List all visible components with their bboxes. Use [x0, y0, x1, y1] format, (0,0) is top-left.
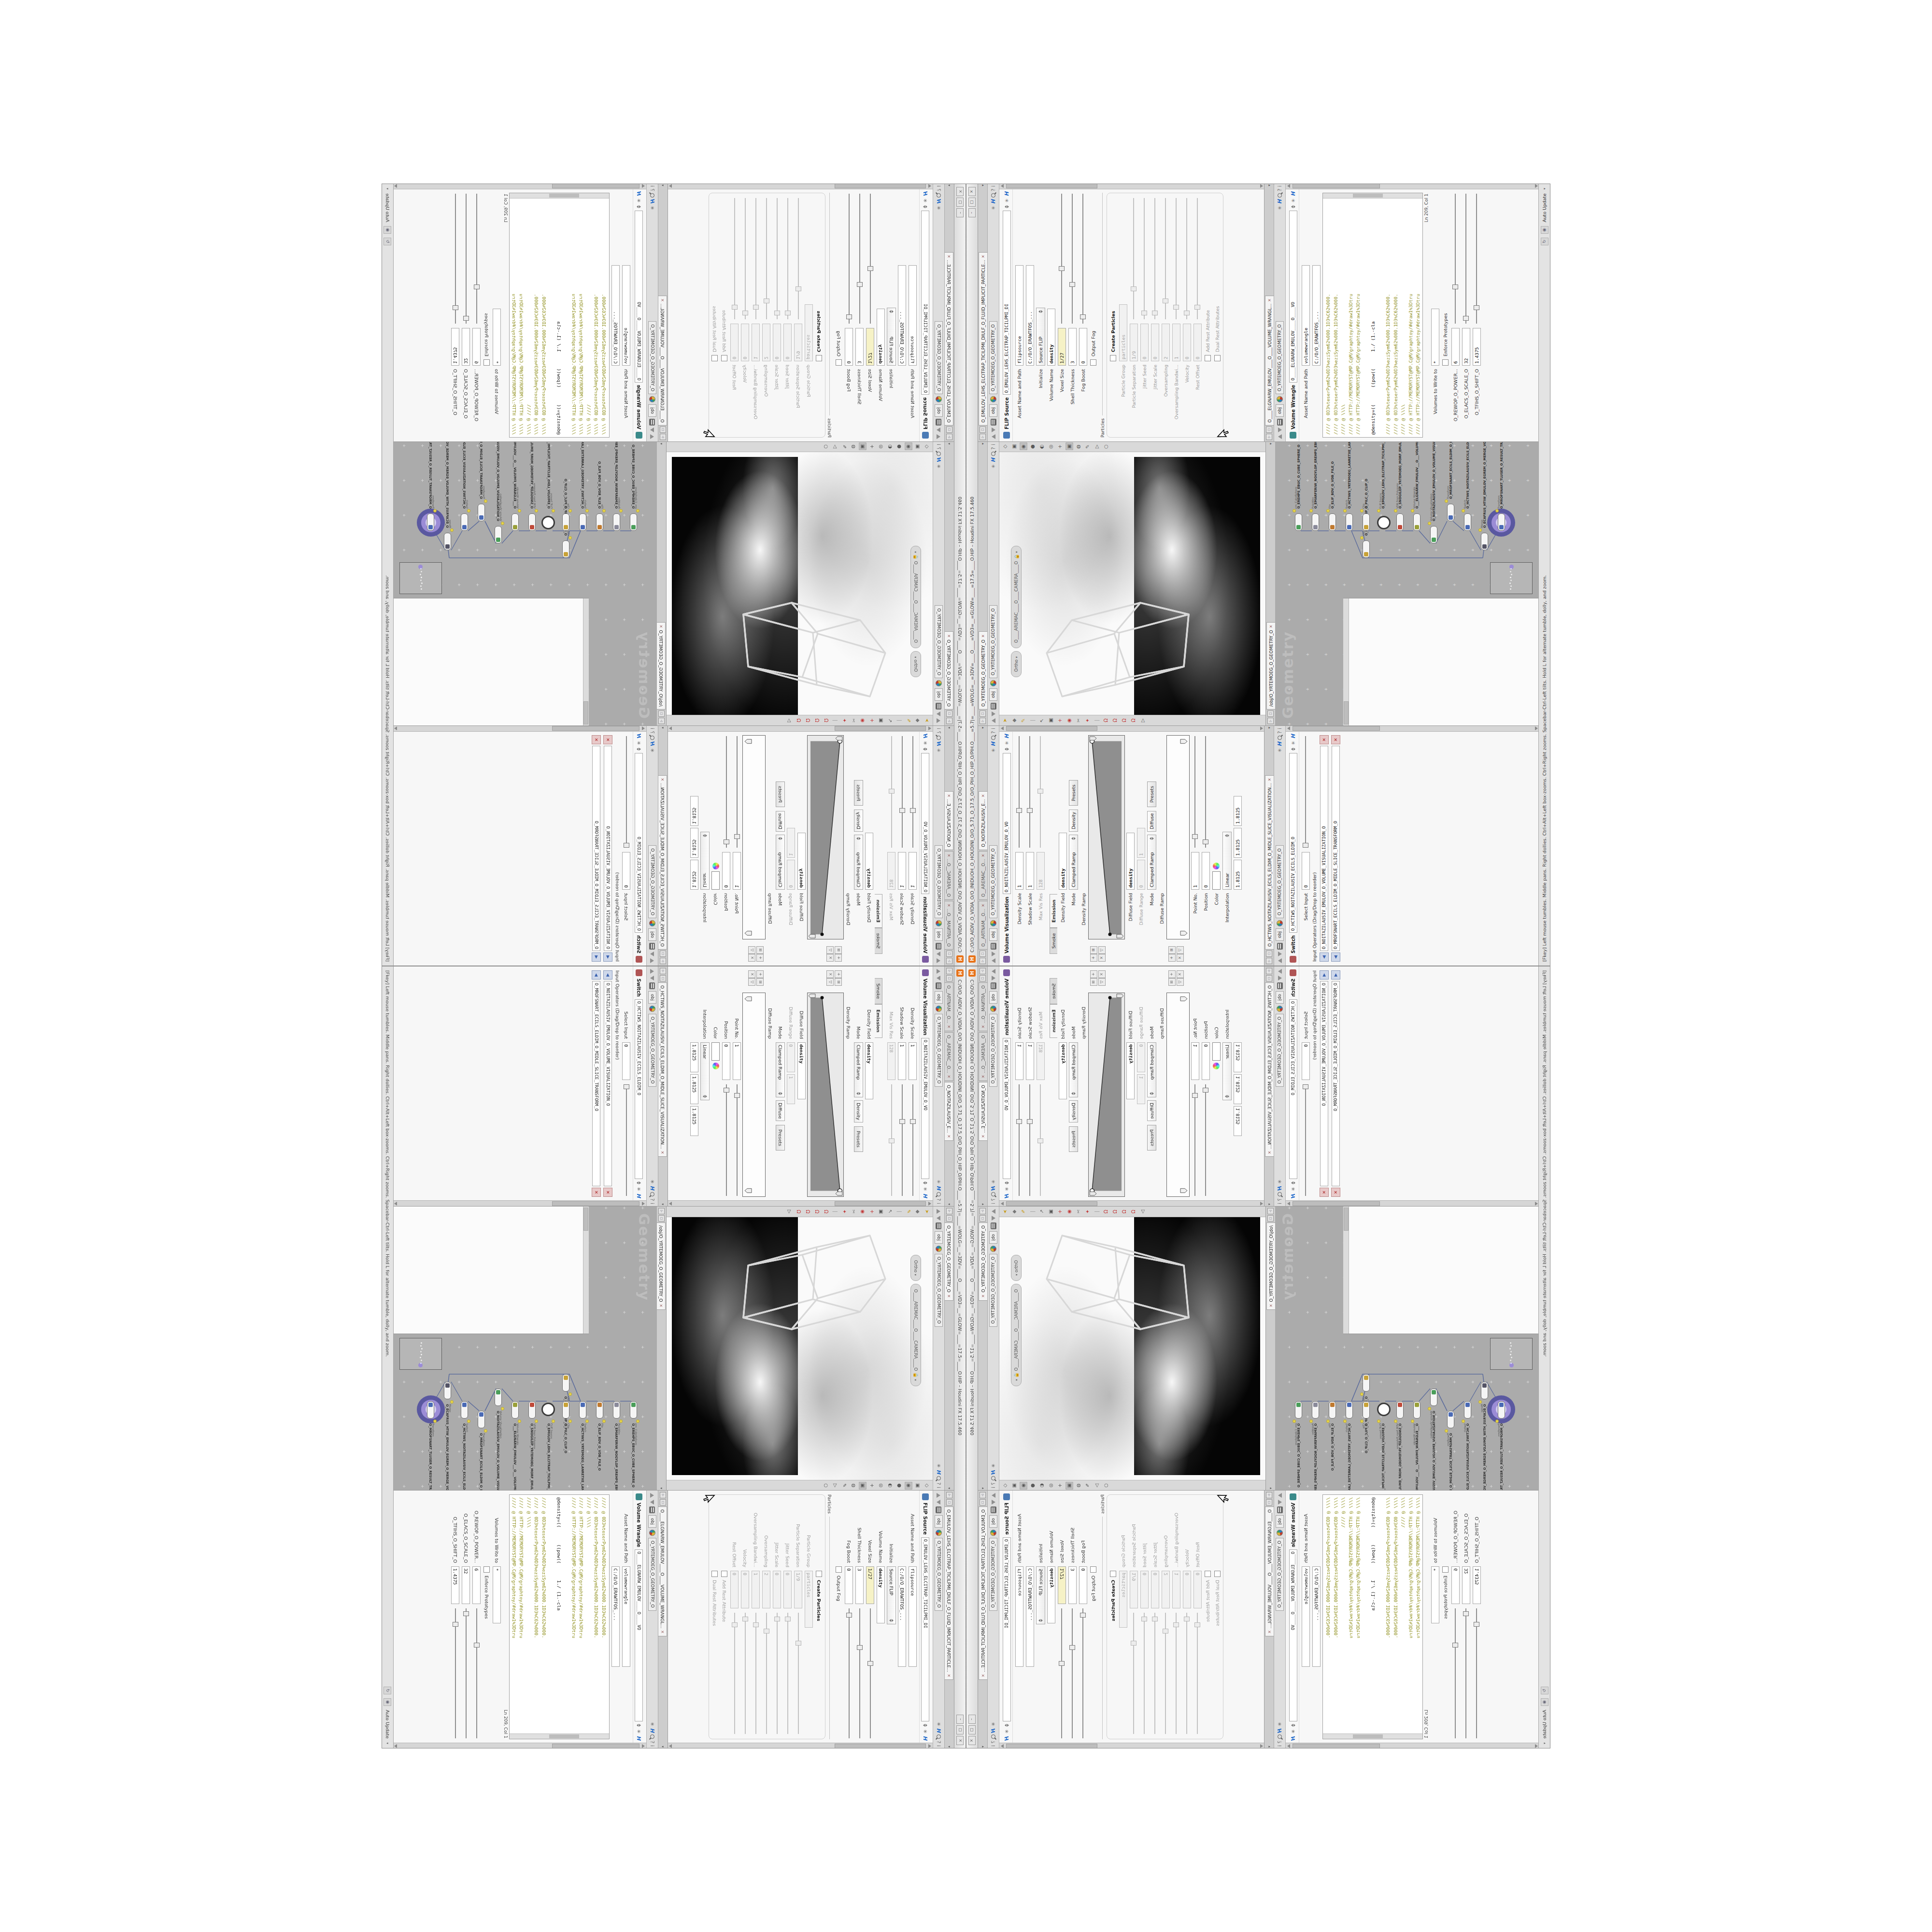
- search-icon[interactable]: [650, 736, 654, 740]
- viewport-tool-icon[interactable]: ◐: [1038, 443, 1046, 451]
- viewport-tool-icon[interactable]: ✎: [905, 717, 912, 724]
- pane-tab[interactable]: O_EMULOV_LEHS_ELCITRAP_TICILPMI_DIULF_O_…: [945, 1506, 953, 1680]
- node-flag[interactable]: [1495, 509, 1499, 512]
- delete-icon[interactable]: ×: [1331, 1188, 1340, 1197]
- node-flag[interactable]: [636, 509, 639, 512]
- node-flag[interactable]: [619, 1420, 623, 1423]
- ramp-widget-density[interactable]: [1088, 993, 1125, 1197]
- pane-tab[interactable]: O_YRTEMOEG_O_GEOMETRY_O×: [979, 631, 987, 710]
- viewport-tool-icon[interactable]: +: [1056, 443, 1064, 451]
- help-icon[interactable]: ?: [991, 189, 996, 191]
- node-flag[interactable]: [484, 499, 487, 503]
- param-field[interactable]: 3: [856, 328, 864, 366]
- viewport-tool-icon[interactable]: ◐: [1038, 1482, 1046, 1490]
- param-slider[interactable]: [1463, 1608, 1469, 1739]
- param-slider[interactable]: [899, 1084, 906, 1197]
- node-flag[interactable]: [1462, 509, 1465, 512]
- snapshot-icon[interactable]: [991, 982, 996, 989]
- tab-close-icon[interactable]: ×: [1267, 298, 1272, 302]
- param-field[interactable]: 3: [1068, 328, 1077, 366]
- pane-float-icon[interactable]: □: [946, 975, 952, 981]
- pane-tab[interactable]: /obj/O_YRTEMOEG_O_GEOMETRY_O×: [657, 622, 666, 710]
- snapshot-icon[interactable]: [650, 419, 655, 426]
- param-field[interactable]: density: [1047, 309, 1055, 366]
- pane-tab[interactable]: O_EMULOV_LEHS_ELCITRAP_TICILPMI_DIULF_O_…: [945, 252, 953, 426]
- tab-menu-caret-icon[interactable]: ▾: [1269, 443, 1273, 445]
- param-field[interactable]: 2: [763, 1571, 771, 1608]
- slider-handle[interactable]: [1184, 1617, 1190, 1621]
- search-icon[interactable]: [991, 736, 995, 740]
- gear-icon[interactable]: ✳: [650, 206, 655, 210]
- gear-icon[interactable]: ✳: [991, 206, 996, 210]
- presets-button[interactable]: Presets: [1147, 781, 1156, 807]
- node-flag[interactable]: [1394, 1420, 1397, 1423]
- param-field[interactable]: 0: [787, 860, 796, 890]
- pane-float-icon[interactable]: □: [946, 1215, 952, 1222]
- cook-mode-icon[interactable]: ◉: [1541, 226, 1548, 234]
- tab-menu-caret-icon[interactable]: ▾: [661, 1746, 665, 1747]
- gear-icon[interactable]: ✳: [650, 1179, 655, 1183]
- param-slider[interactable]: [1173, 197, 1179, 319]
- nav-back-icon[interactable]: [992, 969, 995, 974]
- info-icon[interactable]: i: [936, 444, 941, 445]
- search-icon[interactable]: [650, 1192, 654, 1196]
- minimize-button[interactable]: –: [956, 1715, 964, 1724]
- slider-handle[interactable]: [732, 305, 738, 310]
- tab-close-icon[interactable]: ×: [947, 255, 951, 258]
- snapshot-icon[interactable]: [991, 1222, 996, 1229]
- viewport-tool-icon[interactable]: ▷: [785, 717, 793, 724]
- slider-handle[interactable]: [1173, 305, 1179, 310]
- param-slider[interactable]: [1026, 735, 1033, 848]
- ramp-button[interactable]: ⊞: [1168, 978, 1176, 986]
- param-field[interactable]: 0: [1140, 324, 1149, 361]
- viewport-tool-icon[interactable]: ↖: [886, 717, 894, 724]
- pane-tab[interactable]: O__ARTNAM__O...×: [979, 982, 987, 1031]
- code-scrollbar[interactable]: [1323, 1733, 1422, 1739]
- viewport-tool-icon[interactable]: ➤: [923, 1208, 931, 1216]
- pane-split-icon[interactable]: ▷: [1266, 1492, 1272, 1498]
- nav-back-icon[interactable]: [1278, 958, 1282, 963]
- network-node[interactable]: [613, 513, 620, 531]
- param-slider[interactable]: [473, 193, 480, 324]
- pane-split-icon[interactable]: ▷: [946, 968, 952, 974]
- param-slider[interactable]: [1026, 1084, 1033, 1197]
- node-flag[interactable]: [1309, 509, 1313, 512]
- slider-handle[interactable]: [1463, 1611, 1469, 1616]
- param-field[interactable]: 1: [898, 852, 907, 890]
- param-slider[interactable]: [731, 1613, 738, 1735]
- spinner-icon[interactable]: [1005, 1181, 1009, 1184]
- spinner-icon[interactable]: [923, 205, 928, 208]
- param-slider[interactable]: [1162, 197, 1169, 319]
- breadcrumb-node[interactable]: O_YRTEMOEG_O_GEOMETRY_O: [989, 605, 997, 678]
- tab-close-icon[interactable]: ×: [981, 1294, 985, 1298]
- ramp-widget-diffuse[interactable]: [742, 993, 766, 1197]
- node-name-field[interactable]: O_HCTIWS_NOITAZILAUSIV_ECILS_ELDIM_O: [1289, 999, 1297, 1179]
- network-node[interactable]: [1498, 513, 1505, 531]
- color-wheel-icon[interactable]: [712, 1063, 719, 1069]
- checkbox[interactable]: [1214, 1571, 1221, 1577]
- ramp-button[interactable]: ▽: [1177, 946, 1184, 954]
- spinner-icon[interactable]: [1005, 748, 1009, 751]
- param-field[interactable]: 0: [731, 1571, 739, 1608]
- param-field[interactable]: 1: [752, 324, 760, 361]
- breadcrumb-context[interactable]: obj: [989, 928, 997, 941]
- pane-split-icon[interactable]: ▷: [980, 1492, 986, 1498]
- viewport-tool-icon[interactable]: ➤: [923, 717, 931, 724]
- param-field[interactable]: 1.8125: [691, 828, 699, 858]
- nav-back-icon[interactable]: [992, 1209, 995, 1214]
- ramp-button[interactable]: +: [756, 954, 764, 962]
- breadcrumb-node[interactable]: O_YRTEMOEG_O_GEOMETRY_O: [935, 605, 943, 678]
- param-field[interactable]: *: [493, 309, 501, 366]
- ramp-button[interactable]: ▽: [1098, 946, 1106, 954]
- network-node[interactable]: [630, 1401, 637, 1419]
- ramp-button[interactable]: ×: [826, 970, 834, 978]
- field-chip[interactable]: Diffuse: [776, 1100, 785, 1121]
- info-icon[interactable]: i: [991, 1203, 996, 1204]
- viewport-tool-icon[interactable]: ◉: [859, 1208, 867, 1216]
- houdini-help-icon[interactable]: H: [936, 199, 942, 204]
- tab-menu-caret-icon[interactable]: ▾: [947, 1203, 951, 1205]
- network-node[interactable]: [541, 1403, 555, 1416]
- node-flag[interactable]: [467, 1420, 470, 1423]
- param-field[interactable]: 1: [1172, 1571, 1180, 1608]
- checkbox[interactable]: [712, 1571, 718, 1577]
- node-name-field[interactable]: O____ELGNARW_EMULOV____O____VO: [635, 1549, 643, 1721]
- param-field[interactable]: 32: [462, 328, 470, 366]
- ramp-button[interactable]: ⊞: [835, 946, 842, 954]
- slider-handle[interactable]: [734, 1093, 740, 1098]
- node-name-field[interactable]: O____ELGNARW_EMULOV____O____VO: [635, 211, 643, 383]
- param-slider[interactable]: [452, 1608, 459, 1739]
- pane-split-icon[interactable]: ▷: [980, 718, 986, 724]
- nav-forward-icon[interactable]: [651, 976, 654, 980]
- viewport-tool-icon[interactable]: Ω: [822, 1208, 830, 1216]
- viewport-tool-icon[interactable]: Ω: [1130, 1208, 1137, 1216]
- network-node[interactable]: [444, 1382, 451, 1399]
- param-field[interactable]: 0: [784, 1571, 792, 1608]
- slider-handle[interactable]: [453, 1622, 458, 1627]
- param-slider[interactable]: [473, 1608, 480, 1739]
- gear-icon[interactable]: ✳: [1291, 1729, 1296, 1733]
- info-icon[interactable]: i: [991, 728, 996, 729]
- view-mode-pill[interactable]: Ortho ▾: [1011, 1255, 1022, 1281]
- param-field[interactable]: 0: [784, 324, 792, 361]
- node-flag[interactable]: [1394, 509, 1397, 512]
- pane-tab[interactable]: O__AREMAC__O...×: [945, 851, 953, 900]
- slider-handle[interactable]: [846, 314, 852, 319]
- checkbox[interactable]: [1090, 1566, 1096, 1573]
- tab-close-icon[interactable]: ×: [947, 1135, 951, 1138]
- refresh-icon[interactable]: ↻: [384, 238, 392, 245]
- help-icon[interactable]: ?: [1277, 1198, 1282, 1201]
- reorder-icon[interactable]: ◀: [604, 970, 613, 980]
- param-field[interactable]: 0: [1193, 324, 1202, 361]
- pane-tab[interactable]: O__AREMAC__O...×: [979, 851, 987, 900]
- network-node[interactable]: [1377, 516, 1391, 529]
- tab-menu-caret-icon[interactable]: ▾: [1267, 727, 1271, 729]
- slider-handle[interactable]: [1474, 1622, 1479, 1627]
- tab-close-icon[interactable]: ×: [1269, 1304, 1273, 1307]
- network-node[interactable]: [1498, 1401, 1505, 1419]
- viewport-tool-icon[interactable]: |: [831, 1208, 839, 1216]
- viewport-render-area[interactable]: Ortho ▾ O____AREMAC____O____CAMERA____O …: [999, 452, 1266, 715]
- dropdown[interactable]: Clamped Ramp: [776, 835, 785, 890]
- node-flag[interactable]: [450, 1400, 454, 1404]
- param-slider[interactable]: [742, 197, 749, 319]
- pane-tab[interactable]: O_HCTIWS_NOITAZILAUSIV_ECILS_ELDIM_O_MID…: [658, 775, 667, 950]
- slider-handle[interactable]: [764, 1629, 769, 1634]
- slider-handle[interactable]: [857, 1645, 863, 1650]
- viewport-tool-icon[interactable]: +: [868, 1208, 876, 1216]
- param-slider[interactable]: [867, 1608, 874, 1739]
- viewport-render-area[interactable]: Ortho ▾ O____AREMAC____O____CAMERA____O …: [999, 1217, 1266, 1480]
- viewport-tool-icon[interactable]: ▷: [1139, 1208, 1147, 1216]
- houdini-help-icon[interactable]: H: [1277, 1728, 1283, 1733]
- pane-scrollbar[interactable]: [393, 725, 646, 732]
- viewport-tool-icon[interactable]: ▷: [831, 1482, 839, 1490]
- tab-menu-caret-icon[interactable]: ▾: [1267, 1746, 1271, 1747]
- pane-float-icon[interactable]: □: [980, 710, 986, 717]
- param-field[interactable]: 1: [1015, 852, 1023, 890]
- param-field[interactable]: 0: [1302, 852, 1310, 890]
- snapshot-icon[interactable]: [650, 982, 655, 989]
- node-flag[interactable]: [568, 1420, 572, 1423]
- viewport-tool-icon[interactable]: ▷: [785, 1208, 793, 1216]
- node-flag[interactable]: [585, 509, 589, 512]
- delete-icon[interactable]: ×: [604, 735, 613, 744]
- param-slider[interactable]: [846, 1608, 852, 1739]
- param-field[interactable]: 0: [741, 1571, 750, 1608]
- network-node[interactable]: [511, 1401, 519, 1419]
- param-slider[interactable]: [1192, 735, 1198, 848]
- network-node[interactable]: [1329, 1401, 1336, 1419]
- nav-forward-icon[interactable]: [992, 1500, 995, 1505]
- houdini-help-icon[interactable]: H: [649, 1186, 655, 1190]
- slider-handle[interactable]: [1203, 1088, 1208, 1093]
- dropdown[interactable]: Linear: [1222, 1042, 1232, 1100]
- presets-button[interactable]: Presets: [854, 780, 864, 806]
- pane-split-icon[interactable]: ▷: [1267, 1208, 1274, 1214]
- viewport-tool-icon[interactable]: ▣: [1047, 1208, 1055, 1216]
- network-node[interactable]: [461, 1401, 468, 1419]
- network-canvas[interactable]: + + + + + + + + + + + + + + + + + + + + …: [1276, 441, 1539, 725]
- network-node[interactable]: [1447, 504, 1454, 521]
- param-slider[interactable]: [1192, 1084, 1198, 1197]
- nav-back-icon[interactable]: [937, 434, 941, 439]
- gear-icon[interactable]: ✳: [923, 1187, 928, 1191]
- pane-float-icon[interactable]: □: [946, 1499, 952, 1506]
- houdini-help-icon[interactable]: H: [990, 1470, 996, 1474]
- viewport-tool-icon[interactable]: ✎: [1084, 1482, 1092, 1490]
- param-field[interactable]: 128: [888, 1042, 896, 1080]
- param-field[interactable]: *: [1431, 1566, 1439, 1623]
- search-icon[interactable]: [1278, 736, 1282, 740]
- houdini-help-icon[interactable]: H: [1277, 742, 1283, 746]
- pane-tab[interactable]: O__ARTNAM__O...×: [945, 982, 953, 1031]
- node-flag[interactable]: [535, 509, 538, 512]
- gear-icon[interactable]: ✳: [991, 748, 996, 752]
- gear-icon[interactable]: ✳: [936, 1722, 941, 1726]
- operator-path-field[interactable]: O_MROFSNART_ECILS_ELDIM_O_MIDLE_SLICE_TR…: [1332, 981, 1340, 1186]
- param-slider[interactable]: [1151, 197, 1158, 319]
- viewport-tool-icon[interactable]: Ω: [1121, 1208, 1128, 1216]
- viewport-tool-icon[interactable]: ○: [822, 443, 830, 451]
- param-field[interactable]: 3: [856, 1566, 864, 1604]
- viewport-tool-icon[interactable]: ●: [895, 1482, 903, 1490]
- folder-tab-emission[interactable]: Emission: [875, 894, 882, 928]
- checkbox[interactable]: [484, 1566, 490, 1573]
- slider-handle[interactable]: [796, 1641, 801, 1646]
- viewport-tool-icon[interactable]: ○: [1102, 1482, 1110, 1490]
- breadcrumb-context[interactable]: obj: [935, 991, 943, 1004]
- tab-menu-caret-icon[interactable]: ▾: [661, 727, 665, 729]
- viewport-tool-icon[interactable]: |: [1093, 717, 1101, 724]
- nav-back-icon[interactable]: [937, 958, 941, 963]
- pane-tab[interactable]: O__AREMAC__O...×: [945, 1032, 953, 1081]
- info-icon[interactable]: i: [936, 1745, 941, 1747]
- viewport-tool-icon[interactable]: ▣: [1010, 1482, 1018, 1490]
- param-field[interactable]: 1/27: [867, 1566, 875, 1604]
- ramp-button[interactable]: ▽: [826, 978, 834, 986]
- nav-back-icon[interactable]: [651, 969, 654, 974]
- network-node[interactable]: [579, 1401, 586, 1419]
- param-slider[interactable]: [1473, 193, 1480, 324]
- node-flag[interactable]: [467, 509, 470, 512]
- param-slider[interactable]: [856, 193, 863, 324]
- param-field[interactable]: flipsource: [1015, 265, 1023, 366]
- gear-icon[interactable]: ✳: [1277, 206, 1282, 210]
- breadcrumb-node[interactable]: O_YRTEMOEG_O_GEOMETRY_O: [989, 845, 997, 918]
- subpane-scrollbar[interactable]: [1343, 598, 1349, 725]
- param-field[interactable]: 6: [1451, 1566, 1460, 1604]
- param-field[interactable]: 1.8125: [691, 860, 699, 890]
- param-field[interactable]: 1: [1191, 852, 1199, 890]
- checkbox[interactable]: [722, 1571, 728, 1577]
- node-name-field[interactable]: O_EMULOV_LEHS_ELCITRAP_TICILPMI_DI: [1003, 211, 1011, 395]
- ramp-widget-diffuse[interactable]: [742, 735, 766, 939]
- pane-float-icon[interactable]: □: [980, 1499, 986, 1506]
- operator-path-field[interactable]: O_MROFSNART_ECILS_ELDIM_O_MIDLE_SLICE_TR…: [1332, 746, 1340, 951]
- param-field[interactable]: density: [798, 833, 806, 890]
- param-field[interactable]: 0: [723, 1042, 731, 1080]
- ramp-button[interactable]: +: [756, 970, 764, 978]
- help-icon[interactable]: ?: [1277, 731, 1282, 734]
- houdini-help-icon[interactable]: H: [936, 1470, 942, 1474]
- info-icon[interactable]: i: [1277, 185, 1282, 187]
- search-icon[interactable]: [991, 452, 995, 456]
- tab-close-icon[interactable]: ×: [659, 625, 663, 628]
- houdini-help-icon[interactable]: H: [990, 458, 996, 462]
- node-name-field[interactable]: O_NOITAZILAUSIV_EMULOV_O_VO: [1003, 753, 1011, 895]
- param-field[interactable]: 0: [723, 852, 731, 890]
- houdini-help-icon[interactable]: H: [636, 734, 642, 739]
- param-slider[interactable]: [723, 1084, 730, 1197]
- tab-close-icon[interactable]: ×: [1267, 778, 1272, 781]
- tab-close-icon[interactable]: ×: [981, 1075, 985, 1079]
- network-node[interactable]: [630, 513, 637, 531]
- node-flag[interactable]: [552, 509, 555, 512]
- slider-handle[interactable]: [1016, 808, 1022, 813]
- param-field[interactable]: 2: [1162, 1571, 1170, 1608]
- network-node[interactable]: [1396, 1401, 1404, 1419]
- ramp-button[interactable]: ▽: [826, 946, 834, 954]
- node-name-field[interactable]: O_HCTIWS_NOITAZILAUSIV_ECILS_ELDIM_O: [635, 999, 643, 1179]
- gear-icon[interactable]: ✳: [1004, 1729, 1009, 1733]
- viewport-tool-icon[interactable]: ✂: [850, 717, 857, 724]
- nav-back-icon[interactable]: [937, 969, 941, 974]
- nav-back-icon[interactable]: [937, 718, 941, 723]
- viewport-tool-icon[interactable]: |: [895, 717, 903, 724]
- node-flag[interactable]: [484, 1429, 487, 1433]
- param-field[interactable]: 2: [1162, 324, 1170, 361]
- houdini-help-icon[interactable]: H: [923, 734, 929, 739]
- close-button[interactable]: ×: [956, 1736, 964, 1745]
- code-scrollbar[interactable]: [510, 193, 609, 199]
- viewport-tool-icon[interactable]: Ω: [822, 717, 830, 724]
- pane-split-icon[interactable]: ▷: [980, 1208, 986, 1214]
- breadcrumb-node[interactable]: O_YRTEMOEG_O_GEOMETRY_O: [648, 845, 656, 918]
- viewport-tool-icon[interactable]: |: [831, 717, 839, 724]
- spinner-icon[interactable]: [1291, 748, 1295, 751]
- pane-scrollbar[interactable]: [393, 184, 646, 189]
- snapshot-icon[interactable]: [1277, 982, 1283, 989]
- breadcrumb-context[interactable]: obj: [648, 404, 656, 417]
- node-flag[interactable]: [1478, 1400, 1482, 1404]
- param-slider[interactable]: [1141, 1613, 1148, 1735]
- param-field[interactable]: volumewrangle: [1302, 265, 1310, 366]
- breadcrumb-node[interactable]: O_YRTEMOEG_O_GEOMETRY_O: [935, 1014, 943, 1087]
- pane-scrollbar[interactable]: [1286, 1200, 1539, 1207]
- viewport-tool-icon[interactable]: ▷: [1139, 717, 1147, 724]
- node-flag[interactable]: [1495, 1420, 1499, 1423]
- node-flag[interactable]: [450, 528, 454, 532]
- cook-mode-icon[interactable]: ◉: [1541, 1698, 1548, 1706]
- code-scrollbar[interactable]: [1323, 193, 1422, 199]
- param-field[interactable]: 2: [763, 324, 771, 361]
- gear-icon[interactable]: ✳: [991, 464, 996, 468]
- ramp-button[interactable]: ⊞: [1168, 946, 1176, 954]
- tab-close-icon[interactable]: ×: [660, 1630, 665, 1634]
- node-flag[interactable]: [1411, 1420, 1414, 1423]
- param-field[interactable]: 0: [1302, 1042, 1310, 1080]
- snapshot-icon[interactable]: [936, 943, 942, 950]
- pane-tab[interactable]: O_HCTIWS_NOITAZILAUSIV_ECILS_ELDIM_O_MID…: [658, 982, 667, 1157]
- tab-menu-caret-icon[interactable]: ▾: [947, 1487, 951, 1489]
- slider-handle[interactable]: [734, 834, 740, 839]
- node-flag[interactable]: [585, 1420, 589, 1423]
- param-field[interactable]: 0: [1202, 1042, 1210, 1080]
- pane-scrollbar[interactable]: [393, 1743, 646, 1748]
- pane-float-icon[interactable]: □: [946, 710, 952, 717]
- tab-close-icon[interactable]: ×: [981, 904, 985, 907]
- delete-icon[interactable]: ×: [592, 735, 601, 744]
- tab-close-icon[interactable]: ×: [947, 1674, 951, 1677]
- param-field[interactable]: 1: [1191, 1042, 1199, 1080]
- param-field[interactable]: 1: [787, 1074, 796, 1104]
- viewport-tool-icon[interactable]: ●: [1029, 443, 1037, 451]
- spinner-icon[interactable]: [923, 748, 928, 751]
- node-flag[interactable]: [501, 1407, 504, 1410]
- slider-handle[interactable]: [785, 311, 791, 315]
- node-name-field[interactable]: O_HCTIWS_NOITAZILAUSIV_ECILS_ELDIM_O: [635, 753, 643, 933]
- param-slider[interactable]: [753, 197, 759, 319]
- viewport-tool-icon[interactable]: ✎: [905, 1208, 912, 1216]
- param-slider[interactable]: [1194, 1613, 1201, 1735]
- slider-handle[interactable]: [624, 843, 629, 848]
